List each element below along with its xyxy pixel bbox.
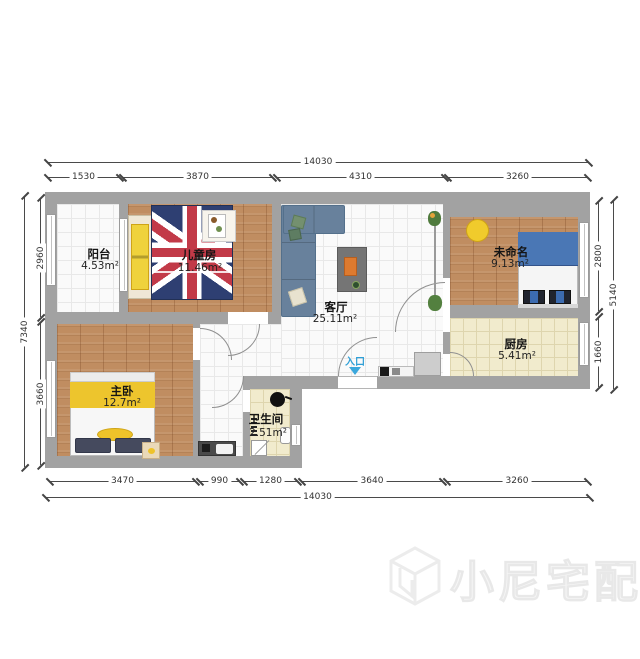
master-bedroom-area: 12.7m²	[103, 397, 141, 409]
balcony-left-window	[46, 214, 56, 286]
unnamed-bed-footboard	[518, 304, 578, 308]
dim-bottom-total: 14030	[46, 497, 589, 498]
entrance-door-opening	[338, 376, 377, 389]
entry-appliance-gray	[392, 368, 400, 375]
kitchen-right-window	[579, 322, 589, 366]
dim-right-total: 5140	[613, 200, 614, 389]
living-room-area: 25.11m²	[313, 313, 358, 325]
shoe-cabinet	[414, 352, 441, 376]
entrance-arrow-icon	[349, 367, 361, 375]
dim-left-total: 7340	[24, 196, 25, 467]
plant-top-flower	[430, 213, 435, 218]
master-door-opening	[193, 328, 200, 360]
top-wall	[45, 192, 590, 204]
kids-room-name: 儿童房	[182, 247, 217, 263]
master-bed-headboard	[70, 372, 155, 382]
unnamed-room-area: 9.13m²	[491, 258, 529, 270]
dim-bottom-seg-4: 3640	[302, 481, 442, 482]
watermark-text: 小尼宅配	[450, 546, 640, 610]
kitchen-area: 5.41m²	[498, 350, 536, 362]
balcony-area: 4.53m²	[81, 260, 119, 272]
unnamed-right-window	[579, 222, 589, 298]
master-left-window	[46, 360, 56, 438]
unnamed-bed-pillow-2	[549, 290, 571, 304]
unnamed-bed-pillow-1	[523, 290, 545, 304]
watermark: 小尼宅配	[388, 546, 640, 610]
dim-top-seg-2: 3870	[123, 177, 272, 178]
plant-bottom	[428, 295, 442, 311]
balcony-divider-window	[119, 218, 128, 292]
watermark-cube-icon	[388, 546, 442, 610]
dim-bottom-seg-1: 3470	[50, 481, 195, 482]
master-nightstand-lamp	[148, 448, 155, 454]
kids-door-opening	[228, 312, 268, 324]
dim-left-seg-1: 2960	[40, 198, 41, 317]
entry-appliance-black	[380, 367, 389, 376]
unnamed-stool	[466, 219, 489, 242]
bathroom-area: 2.51m²	[249, 427, 287, 439]
dim-top-seg-1: 1530	[48, 177, 119, 178]
dim-top-seg-4: 3260	[448, 177, 587, 178]
dim-right-seg-2: 1660	[598, 317, 599, 387]
vanity-appliance	[202, 444, 210, 452]
kids-desk-tray-item-1	[211, 217, 217, 223]
kids-living-divider-wall	[272, 204, 281, 324]
bathroom-name: 卫生间	[249, 411, 284, 427]
coffee-table-tray	[344, 257, 357, 276]
kids-wardrobe-doors	[131, 224, 149, 290]
coffee-table-plant	[352, 281, 360, 289]
dim-right-seg-1: 2800	[598, 201, 599, 311]
kitchen-door-opening	[443, 354, 450, 376]
master-bed-pillow-1	[75, 438, 111, 453]
dim-top-total: 14030	[48, 162, 588, 163]
kids-desk-tray-item-2	[216, 226, 222, 232]
bathroom-basin	[270, 392, 285, 407]
bathroom-right-window	[291, 424, 301, 446]
kids-room-area: 11.46m²	[178, 262, 223, 274]
dim-bottom-seg-5: 3260	[447, 481, 587, 482]
bathroom-door-opening	[243, 390, 250, 412]
dim-bottom-seg-3: 1280	[244, 481, 297, 482]
sofa-cushion-green-2	[288, 228, 302, 241]
dim-top-seg-3: 4310	[277, 177, 444, 178]
dim-bottom-seg-2: 990	[200, 481, 239, 482]
bottom-left-wall	[45, 456, 302, 468]
bottom-mid-wall	[243, 376, 590, 389]
floor-plan: 入口 阳台 4.53m² 儿童房 11.46m² 客厅 25.11m² 未命名 …	[0, 0, 640, 659]
entrance-label: 入口	[345, 353, 365, 368]
vanity-sink	[216, 444, 233, 454]
top-wall-right-thick	[443, 204, 590, 217]
dim-left-seg-2: 3660	[40, 322, 41, 465]
